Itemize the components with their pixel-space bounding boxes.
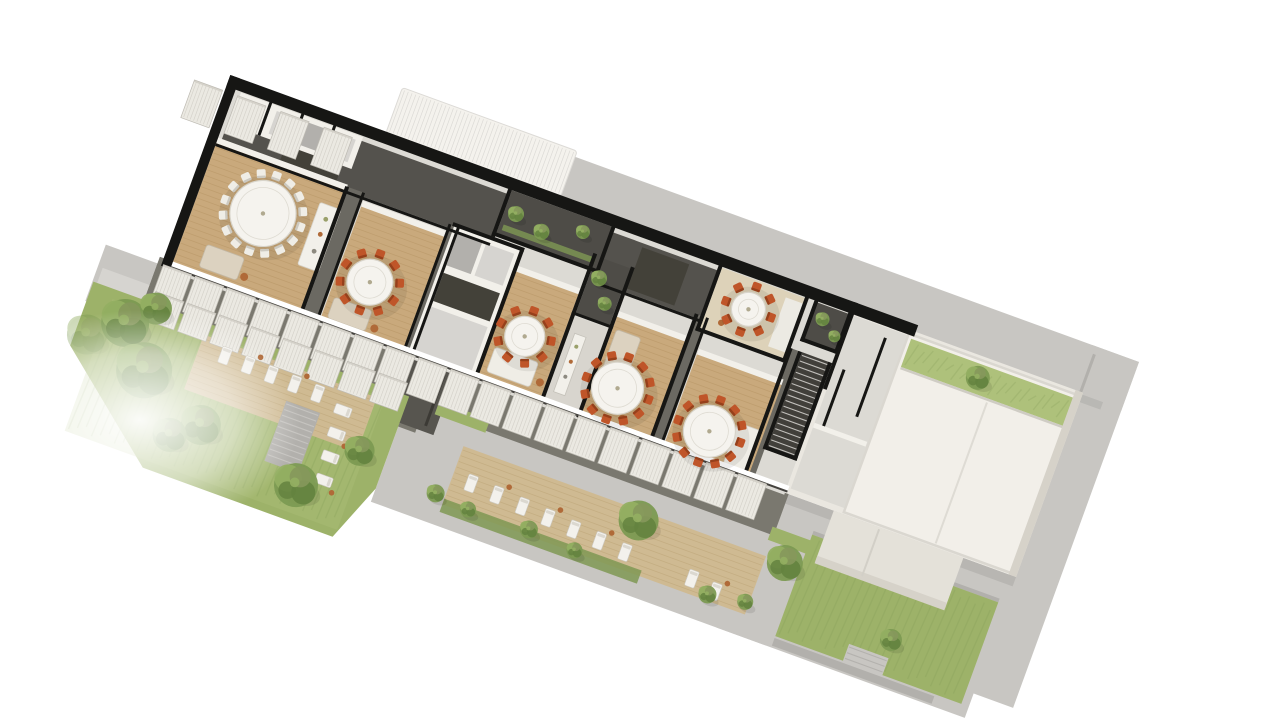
dining-chair: [219, 210, 228, 219]
dining-chair: [520, 359, 529, 368]
dining-chair: [298, 207, 307, 216]
dining-chair: [672, 432, 682, 442]
axonometric-rendering: [0, 0, 1280, 720]
dining-chair: [580, 389, 590, 399]
dining-chair: [260, 249, 269, 258]
dining-chair: [257, 169, 266, 178]
rendering-canvas: [0, 0, 1280, 720]
dining-chair: [737, 420, 747, 430]
dining-chair: [546, 336, 556, 346]
dining-chair: [710, 459, 720, 469]
dining-chair: [607, 351, 617, 361]
dining-chair: [493, 336, 503, 346]
dining-chair: [395, 279, 404, 288]
dining-chair: [645, 377, 655, 387]
dining-chair: [618, 415, 628, 425]
dining-chair: [698, 394, 708, 404]
dining-chair: [336, 277, 345, 286]
